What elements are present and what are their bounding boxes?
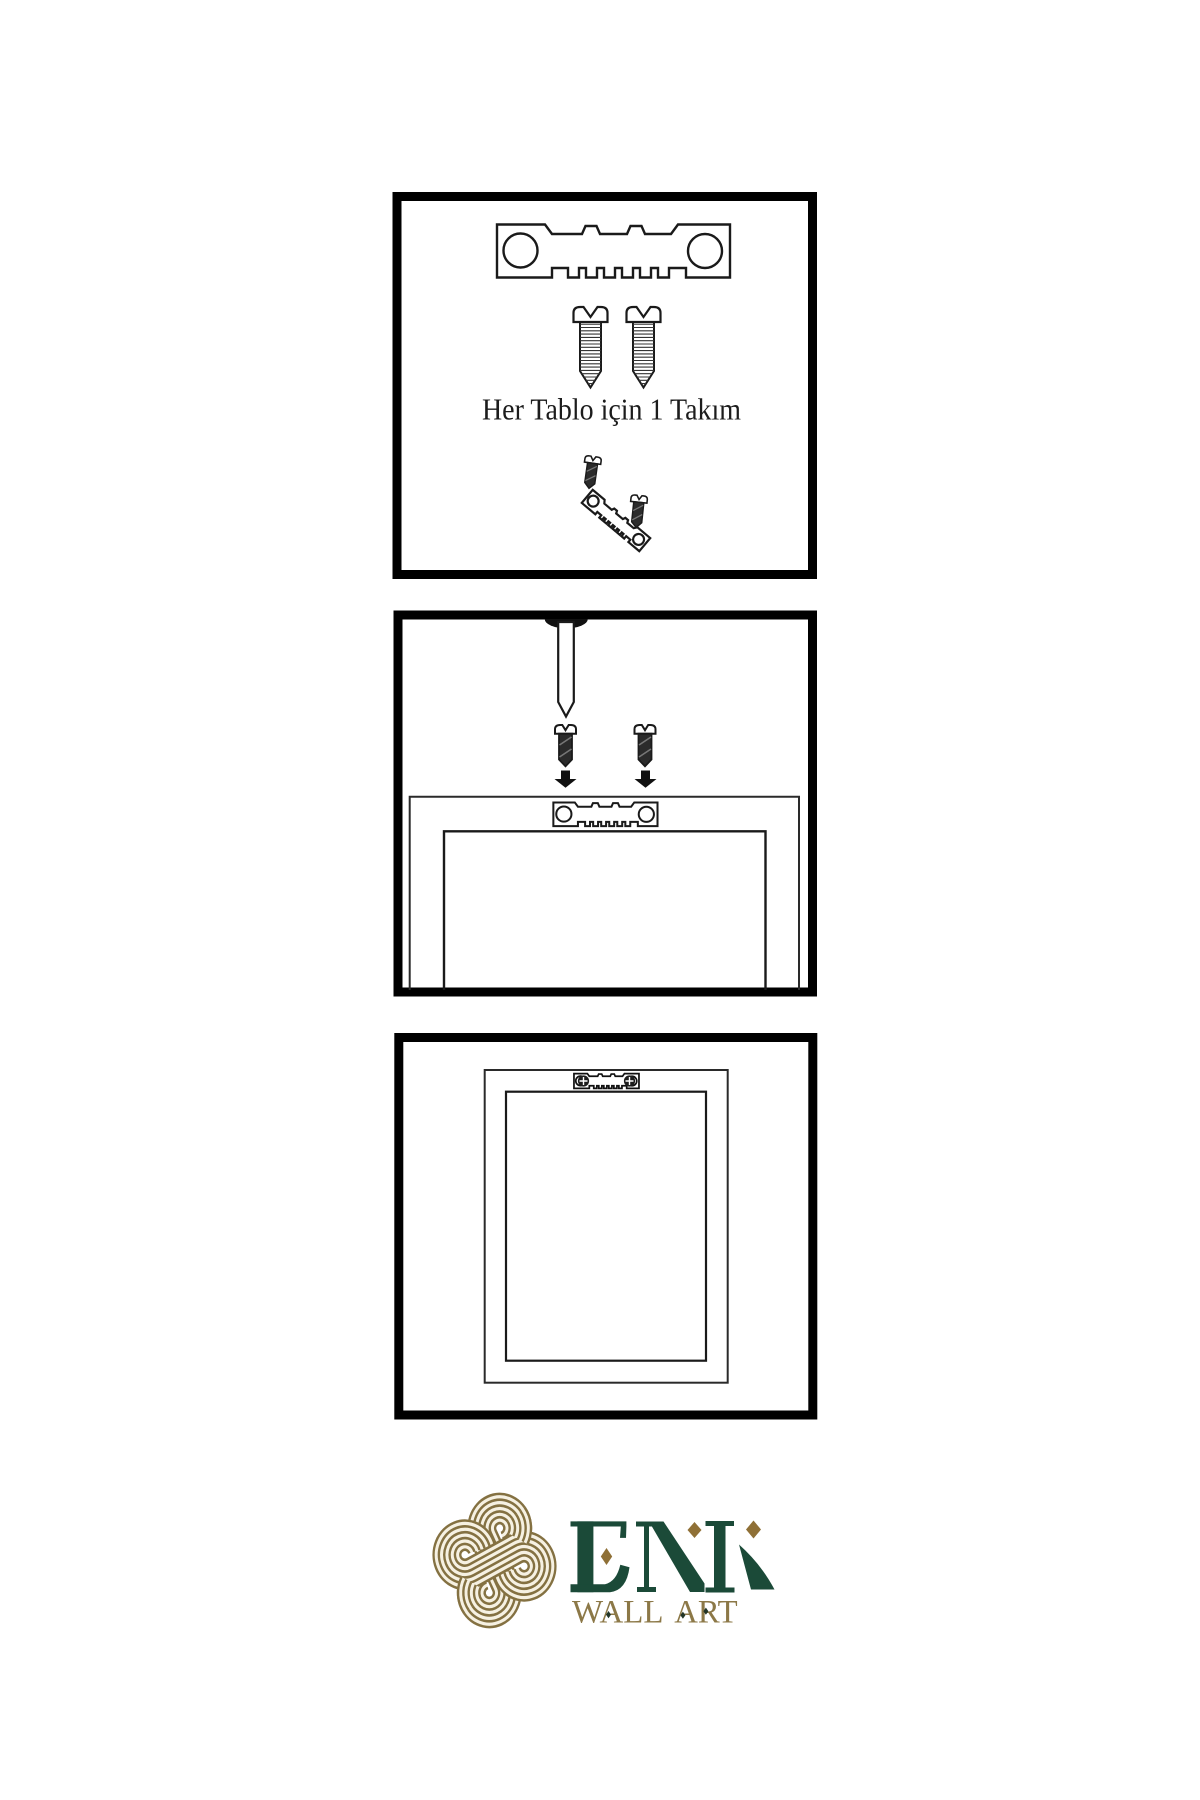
svg-text:WALL: WALL <box>572 1594 664 1630</box>
svg-text:Her Tablo için 1 Takım: Her Tablo için 1 Takım <box>482 392 741 427</box>
